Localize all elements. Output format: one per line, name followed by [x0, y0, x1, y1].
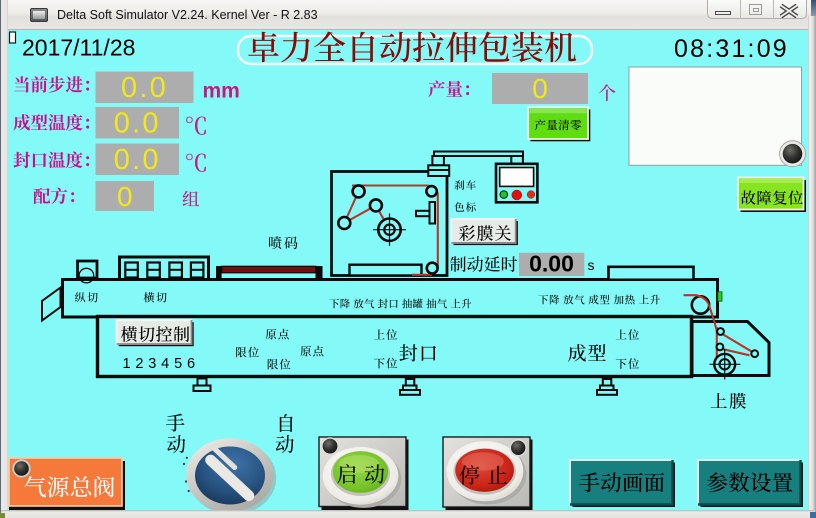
svg-text:0: 0 — [117, 181, 133, 212]
svg-text:0.0: 0.0 — [114, 144, 161, 176]
svg-text:0: 0 — [532, 73, 548, 104]
svg-text:1 2 3 4 5 6: 1 2 3 4 5 6 — [123, 356, 196, 372]
svg-text:08:31:09: 08:31:09 — [674, 35, 789, 63]
svg-text:mm: mm — [203, 80, 240, 103]
svg-text:0.00: 0.00 — [529, 251, 574, 277]
svg-text:0.0: 0.0 — [121, 72, 168, 104]
svg-text:0.0: 0.0 — [114, 108, 161, 140]
svg-text:s: s — [588, 257, 595, 273]
svg-text:2017/11/28: 2017/11/28 — [22, 35, 135, 61]
